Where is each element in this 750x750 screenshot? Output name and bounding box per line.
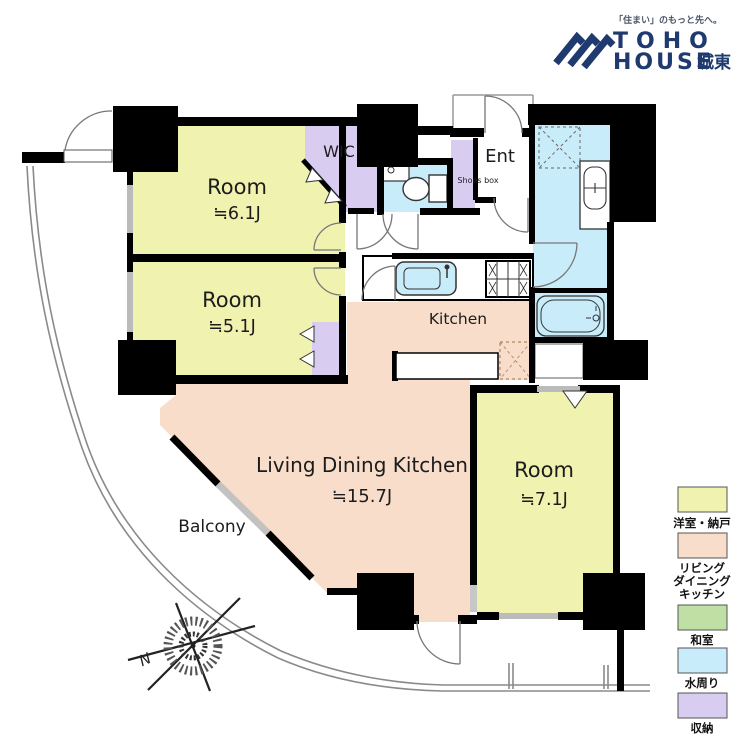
legend-label: 和室 xyxy=(691,633,714,647)
legend-label: 洋室・納戸 xyxy=(673,516,731,530)
balcony-label: Balcony xyxy=(178,517,245,537)
legend-swatch xyxy=(678,487,727,512)
legend-swatch xyxy=(678,693,727,718)
legend-label: 水周り xyxy=(685,676,720,690)
legend-item-rooms: 洋室・納戸 xyxy=(673,487,731,530)
window xyxy=(499,613,558,619)
room-6-1-label: Room xyxy=(207,175,267,199)
pillar xyxy=(583,573,645,630)
legend-swatch xyxy=(678,605,727,630)
legend-swatch xyxy=(678,648,727,673)
legend-label: ダイニング xyxy=(673,574,731,588)
legend: 洋室・納戸 リビング ダイニング キッチン 和室 水周り 収納 xyxy=(673,487,731,735)
room-7-1-label: Room xyxy=(514,458,574,482)
logo-tagline: 「住まい」のもっと先へ。 xyxy=(614,14,722,26)
storage-box xyxy=(535,344,583,378)
hall-closet-area xyxy=(345,196,377,208)
room-7-1-size: ≒7.1J xyxy=(520,490,568,510)
toilet-tank xyxy=(429,175,447,202)
room-6-1-size: ≒6.1J xyxy=(213,204,261,224)
sliding-door xyxy=(470,585,477,612)
kitchen-label: Kitchen xyxy=(429,310,487,328)
pillar xyxy=(583,340,648,380)
shoes-box-label: Shoes box xyxy=(457,176,498,185)
pillar xyxy=(357,573,414,630)
legend-label: キッチン xyxy=(679,587,725,601)
exterior-wall-stub xyxy=(22,152,65,163)
ldk-size: ≒15.7J xyxy=(332,486,393,507)
room-5-1-label: Room xyxy=(202,288,262,312)
ent-label: Ent xyxy=(485,146,515,167)
pillar xyxy=(113,106,178,172)
pillar xyxy=(357,104,418,167)
legend-label: 収納 xyxy=(691,721,714,735)
legend-label: リビング xyxy=(679,561,725,575)
lower-counter xyxy=(396,353,498,379)
pillar xyxy=(118,340,176,395)
floorplan-canvas: Room ≒6.1J Room ≒5.1J Room ≒7.1J Living … xyxy=(0,0,750,750)
wic-label: WIC xyxy=(323,142,355,161)
logo-brand-area: 城東 xyxy=(697,52,731,73)
closet-5-1-area xyxy=(312,322,343,378)
room-5-1-size: ≒5.1J xyxy=(208,317,256,337)
ldk-label: Living Dining Kitchen xyxy=(256,453,468,477)
legend-item-ldk: リビング ダイニング キッチン xyxy=(673,533,731,601)
floorplan-page: Room ≒6.1J Room ≒5.1J Room ≒7.1J Living … xyxy=(0,0,750,750)
legend-swatch xyxy=(678,533,727,558)
toilet-bowl xyxy=(403,178,429,201)
